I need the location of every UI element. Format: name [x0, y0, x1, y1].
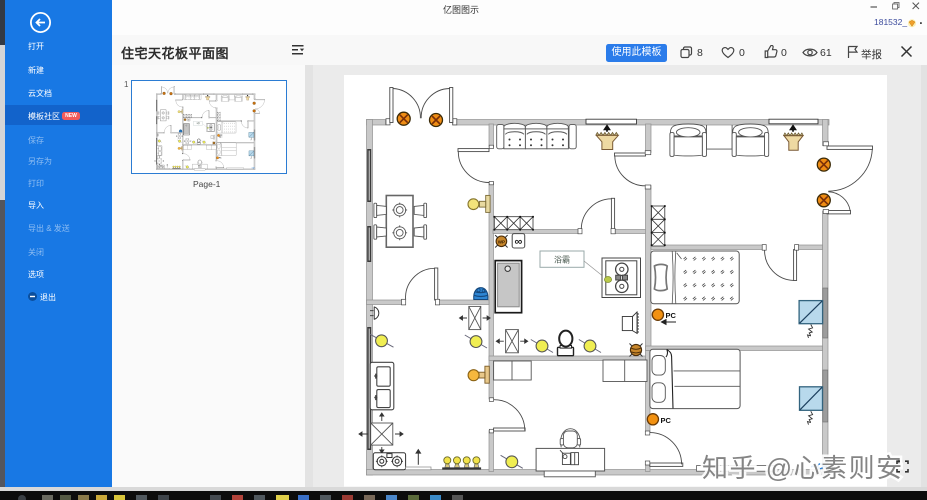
svg-text:PC: PC	[666, 311, 677, 320]
svg-text:∞: ∞	[514, 236, 522, 248]
svg-text:WP: WP	[498, 239, 505, 244]
svg-text:PC: PC	[661, 416, 672, 425]
svg-text:浴霸: 浴霸	[554, 255, 570, 265]
